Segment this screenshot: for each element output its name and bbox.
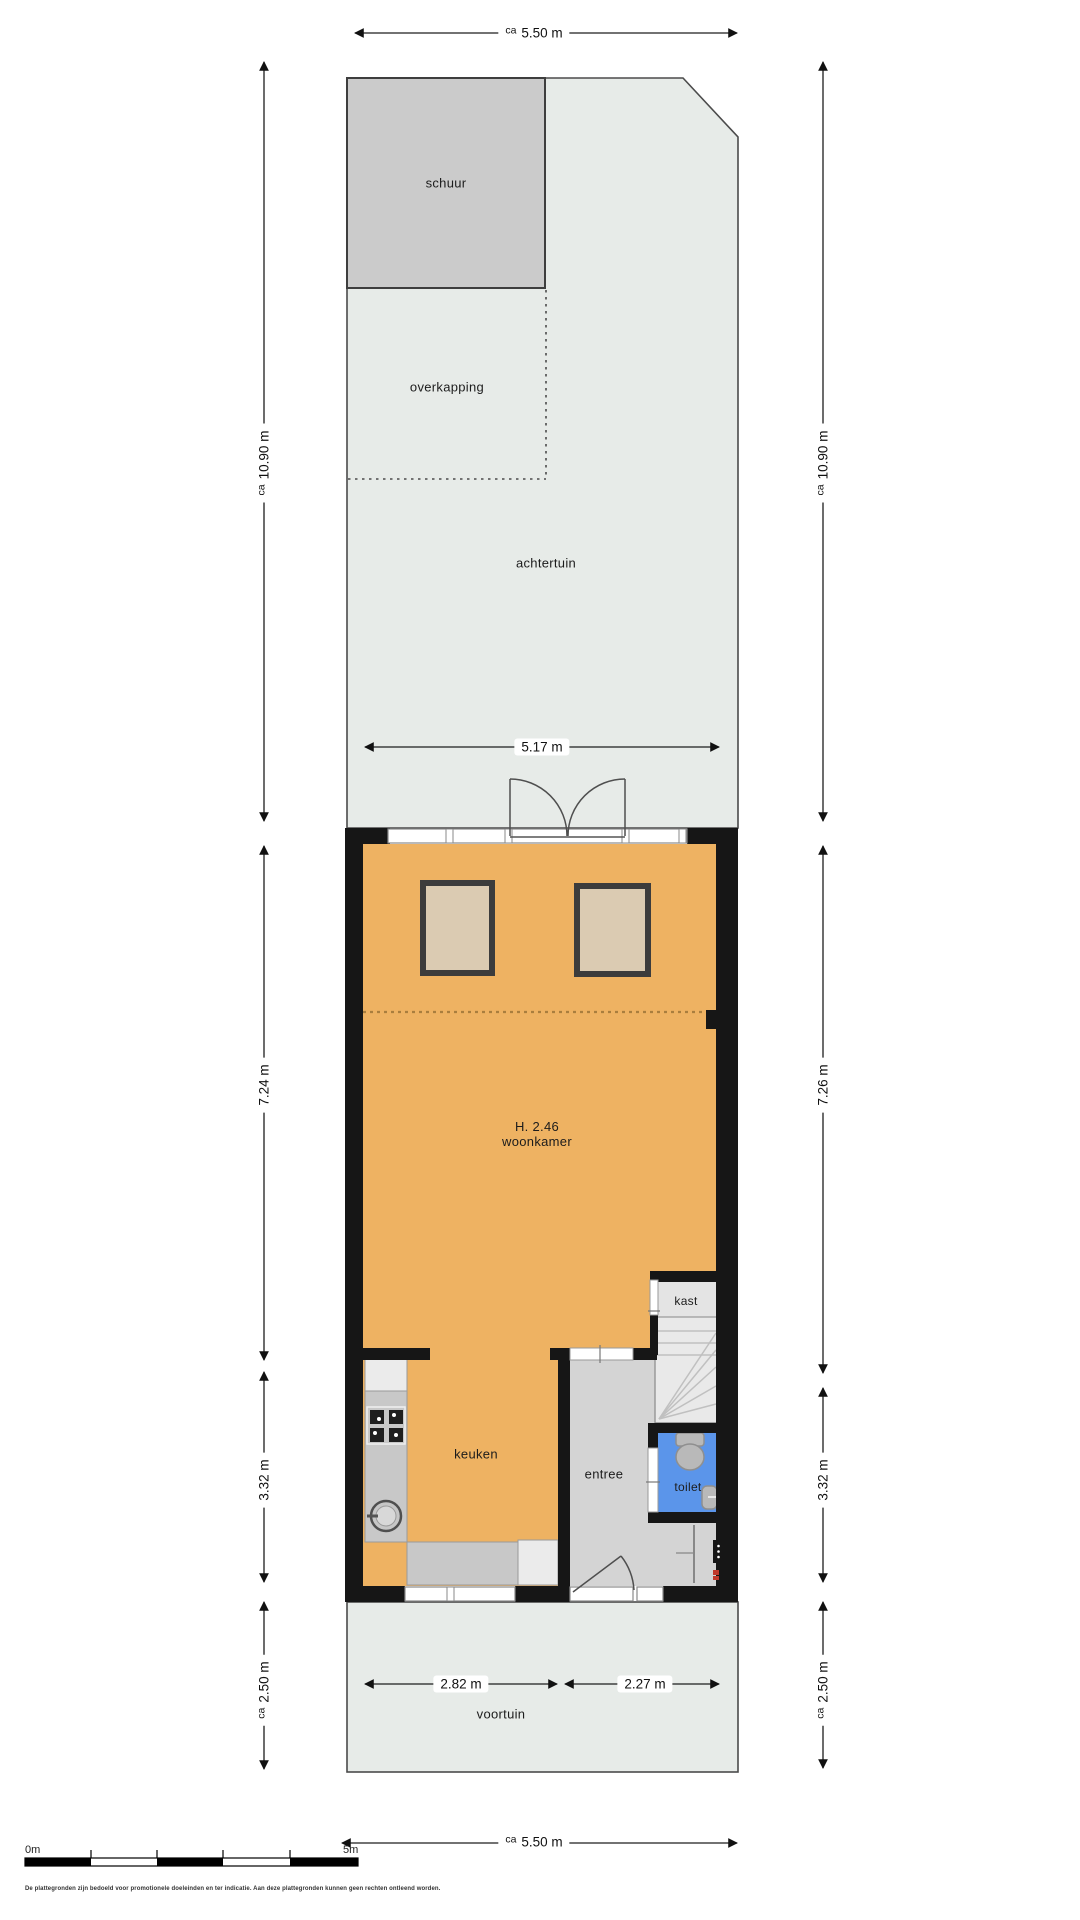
roof-window-left bbox=[423, 883, 492, 973]
label-woonkamer: H. 2.46 woonkamer bbox=[502, 1119, 572, 1149]
roof-window-right bbox=[577, 886, 648, 974]
dim-front-left: ca2.50 m bbox=[256, 1654, 273, 1725]
dim-value: 5.50 m bbox=[521, 26, 562, 41]
label-achtertuin: achtertuin bbox=[516, 556, 576, 571]
dim-prefix: ca bbox=[256, 1708, 268, 1719]
dim-living-left: 7.24 m bbox=[256, 1057, 273, 1112]
dim-living-right: 7.26 m bbox=[815, 1057, 832, 1112]
dim-garden-left: ca10.90 m bbox=[256, 424, 273, 503]
dim-kitchen-right: 3.32 m bbox=[815, 1452, 832, 1507]
dim-prefix: ca bbox=[505, 25, 516, 37]
scale-zero-label: 0m bbox=[25, 1844, 40, 1856]
dim-value: 2.50 m bbox=[257, 1661, 272, 1702]
disclaimer-text: De plattegronden zijn bedoeld voor promo… bbox=[25, 1886, 440, 1892]
frontyard-area bbox=[347, 1602, 738, 1772]
dim-facade-right: 2.27 m bbox=[617, 1676, 672, 1693]
label-schuur: schuur bbox=[426, 176, 467, 191]
scale-bar bbox=[25, 1850, 358, 1866]
scale-five-label: 5m bbox=[343, 1844, 358, 1856]
hand-basin-icon bbox=[702, 1486, 717, 1509]
label-voortuin: voortuin bbox=[477, 1707, 526, 1722]
floorplan-drawing bbox=[0, 0, 1080, 1920]
dim-prefix: ca bbox=[505, 1834, 516, 1846]
dim-value: 10.90 m bbox=[257, 431, 272, 480]
dim-prefix: ca bbox=[815, 484, 827, 495]
floorplan-page: schuur overkapping achtertuin H. 2.46 wo… bbox=[0, 0, 1080, 1920]
closet-door bbox=[648, 1280, 660, 1315]
label-toilet: toilet bbox=[674, 1480, 701, 1494]
dim-kitchen-left: 3.32 m bbox=[256, 1452, 273, 1507]
dim-bottom-width: ca5.50 m bbox=[498, 1834, 569, 1851]
label-entree: entree bbox=[585, 1467, 624, 1482]
dim-facade-left: 2.82 m bbox=[433, 1676, 488, 1693]
toilet-bowl-icon bbox=[676, 1433, 704, 1470]
dim-front-right: ca2.50 m bbox=[815, 1654, 832, 1725]
dim-prefix: ca bbox=[256, 484, 268, 495]
room-name-label: woonkamer bbox=[502, 1134, 572, 1149]
label-keuken: keuken bbox=[454, 1447, 498, 1462]
rear-window-band bbox=[388, 829, 687, 843]
dim-value: 2.50 m bbox=[816, 1661, 831, 1702]
hall-floor-right bbox=[650, 1523, 716, 1586]
wall-stub-right bbox=[706, 1010, 716, 1029]
toilet-door bbox=[646, 1448, 660, 1512]
label-overkapping: overkapping bbox=[410, 380, 484, 395]
dim-value: 10.90 m bbox=[816, 431, 831, 480]
front-door-opening bbox=[570, 1587, 663, 1601]
hall-opening bbox=[570, 1345, 633, 1363]
dim-rear-inner: 5.17 m bbox=[514, 739, 569, 756]
label-kast: kast bbox=[674, 1294, 697, 1308]
ceiling-height-label: H. 2.46 bbox=[502, 1119, 572, 1134]
kitchen-window bbox=[405, 1587, 515, 1601]
dim-top-width: ca5.50 m bbox=[498, 25, 569, 42]
dim-garden-right: ca10.90 m bbox=[815, 424, 832, 503]
dim-value: 5.50 m bbox=[521, 1835, 562, 1850]
dim-prefix: ca bbox=[815, 1708, 827, 1719]
